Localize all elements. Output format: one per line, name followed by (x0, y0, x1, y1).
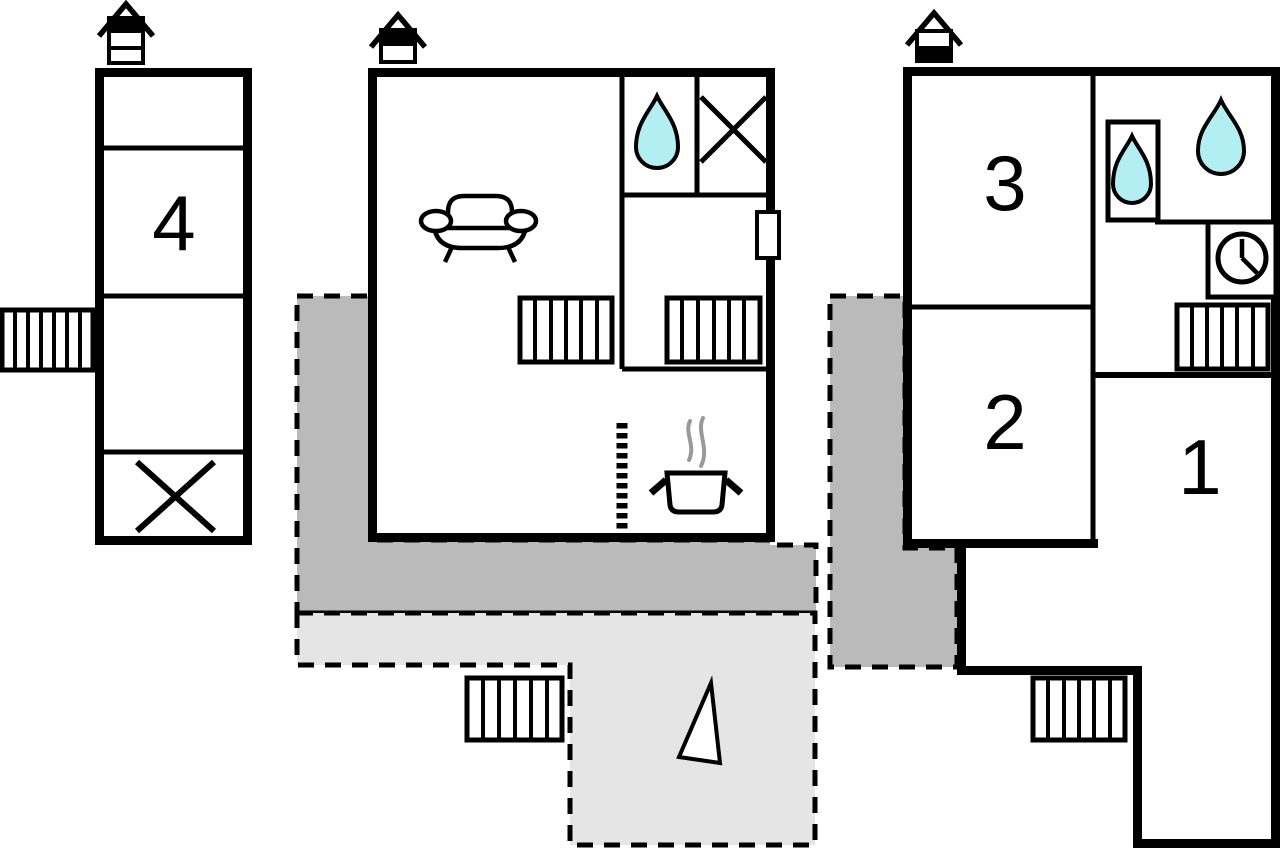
stairs-icon (467, 678, 562, 740)
room-label-1: 1 (1178, 423, 1221, 511)
door-icon (757, 212, 779, 258)
stairs-icon (1177, 305, 1268, 369)
stairs-icon (667, 298, 760, 362)
annex-walls (100, 73, 248, 541)
window-icon (2, 310, 93, 370)
chimney-icon (99, 4, 153, 63)
stairs-icon (1033, 678, 1125, 740)
shower-cubicle-icon (1108, 122, 1158, 220)
chimney-icon (371, 15, 425, 62)
floor-plan-page: 4 (0, 0, 1280, 850)
room-label-3: 3 (983, 139, 1026, 227)
floor-plan-drawing: 4 (0, 0, 1280, 850)
building-annex: 4 (2, 4, 248, 541)
chimney-icon (907, 13, 961, 61)
clock-icon (1208, 222, 1276, 297)
room-label-2: 2 (983, 378, 1026, 466)
room-label-4: 4 (152, 179, 195, 267)
building-first-floor (371, 15, 779, 538)
stairs-icon (520, 298, 612, 362)
